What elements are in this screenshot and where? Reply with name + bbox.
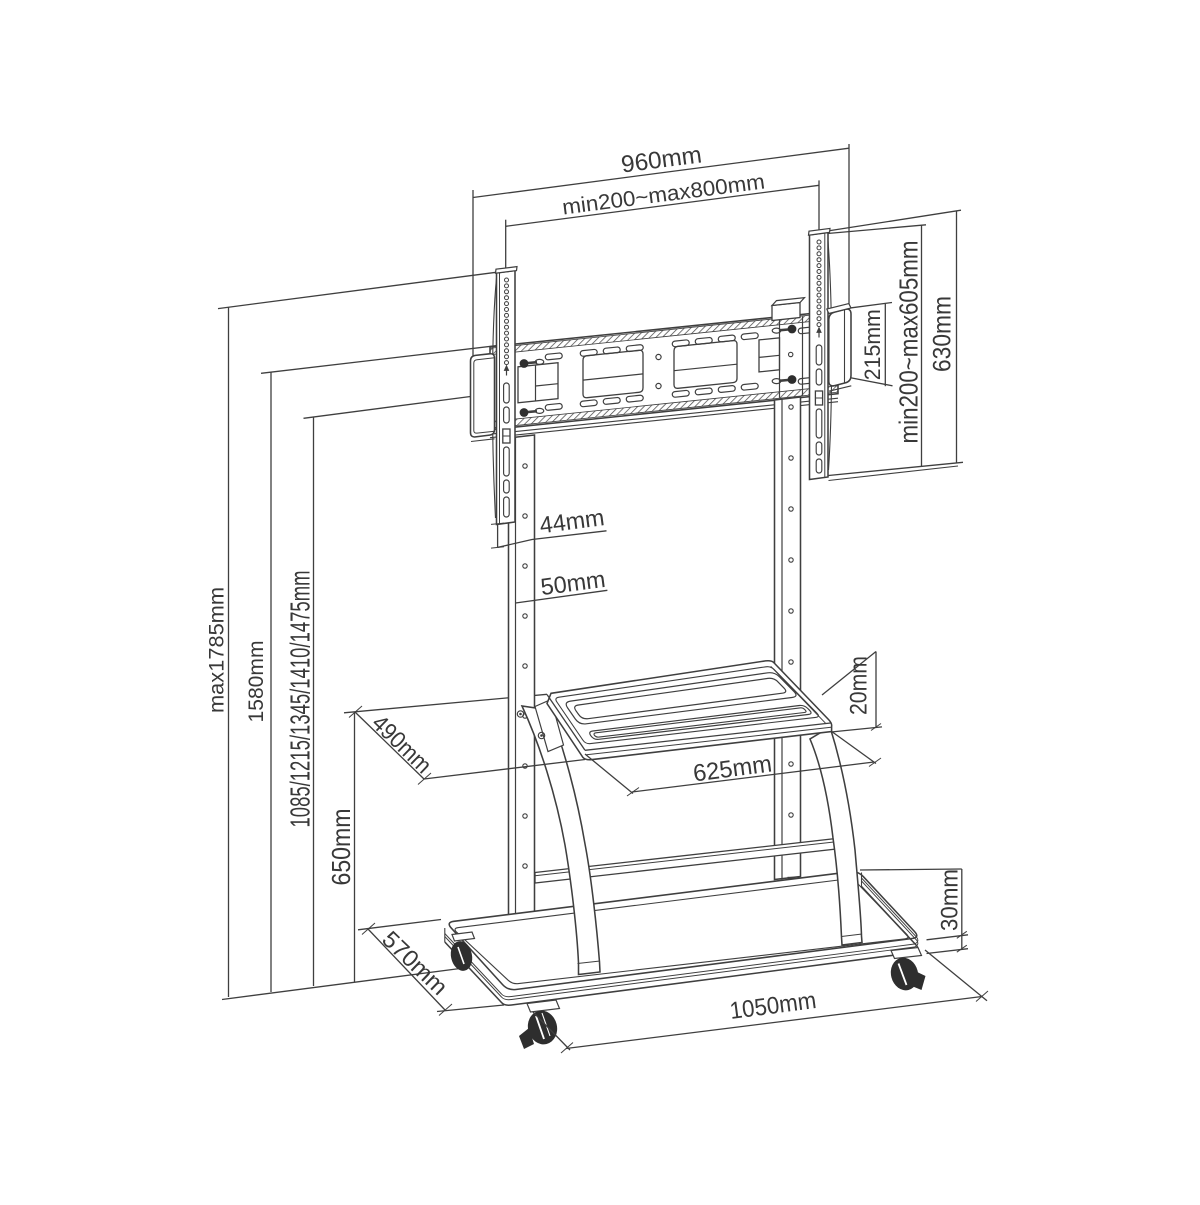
svg-text:215mm: 215mm — [860, 309, 885, 380]
svg-text:min200~max605mm: min200~max605mm — [894, 241, 924, 444]
svg-text:20mm: 20mm — [846, 656, 873, 715]
svg-text:630mm: 630mm — [929, 296, 957, 372]
svg-text:650mm: 650mm — [326, 809, 356, 886]
svg-text:max1785mm: max1785mm — [206, 587, 229, 713]
svg-text:1085/1215/1345/1410/1475mm: 1085/1215/1345/1410/1475mm — [285, 571, 316, 828]
svg-text:1580mm: 1580mm — [245, 641, 268, 723]
svg-text:30mm: 30mm — [937, 869, 964, 931]
